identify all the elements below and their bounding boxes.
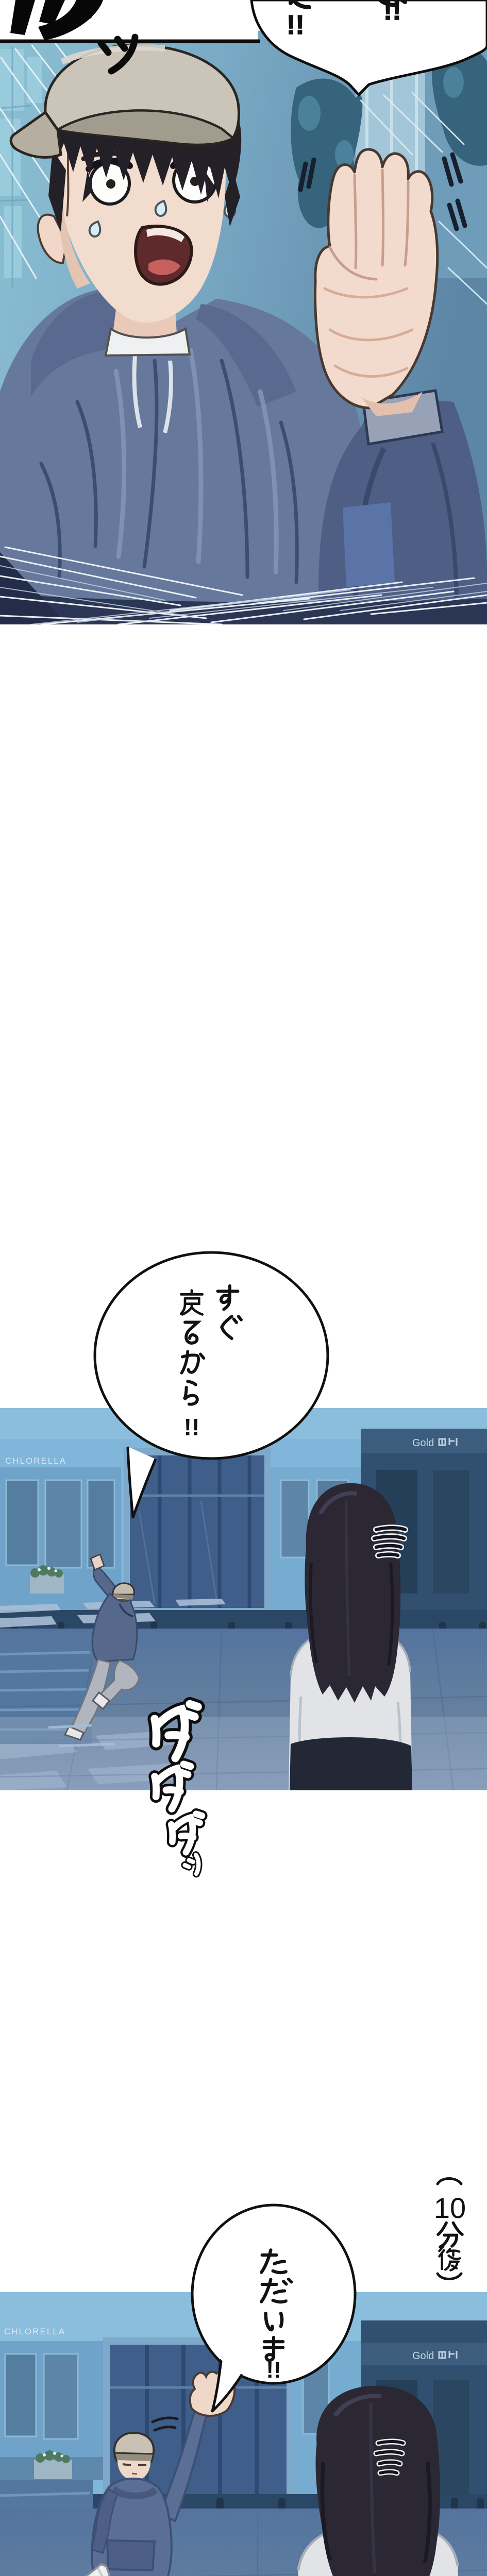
svg-text:!!: !!	[287, 10, 305, 40]
svg-text:CHLORELLA: CHLORELLA	[4, 2327, 65, 2336]
svg-text:Gold: Gold	[412, 2350, 434, 2362]
svg-text:!!: !!	[383, 0, 401, 26]
svg-text:10: 10	[434, 2192, 466, 2224]
svg-text:!!: !!	[266, 2358, 281, 2383]
svg-text:!!: !!	[184, 1414, 200, 1440]
